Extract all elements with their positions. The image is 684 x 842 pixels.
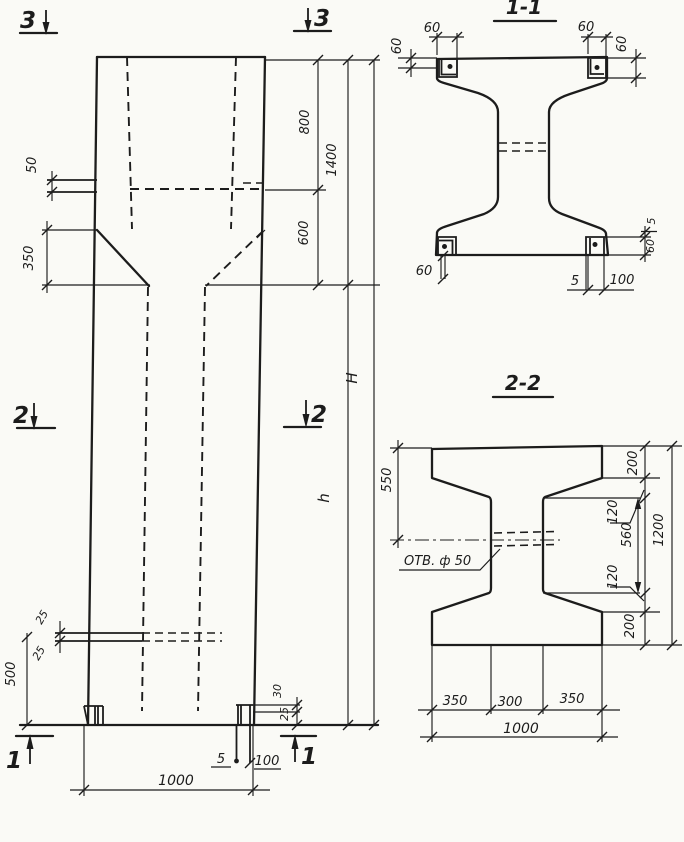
plate-bottom-left-stud-dot [442,244,447,249]
dim-550-group: 550 [380,440,432,548]
hole-label: ОТВ. ф 50 [404,554,471,569]
left-foot-lines [84,706,103,725]
section-2-2-outline [432,446,602,645]
plate-top-left-stud-dot [448,64,453,69]
dim-600-label: 600 [297,221,312,246]
dim-350-right-label: 350 [560,692,585,707]
right-foot-dims: 30 25 [253,684,302,730]
dim-50-label: 50 [25,157,40,174]
column-left-edge [88,57,97,725]
right-foot-lines [236,705,253,725]
dim-30-label: 30 [271,684,284,698]
dim-550-label: 550 [380,468,395,493]
marker-1-right-label: 1 [301,744,317,770]
hole-slot-dimensions: 25 25 500 [4,608,142,730]
marker-3-left-label: 3 [20,8,36,34]
hole-slot-lines [55,633,142,641]
dim-br-5-label: 5 [571,274,579,289]
section-marker-2-right: 2 [284,400,327,428]
section-marker-3-left: 3 [20,8,57,35]
dim-1000-22-label: 1000 [503,721,539,737]
dim-800-label: 800 [298,110,313,135]
dim-1200-label: 1200 [652,513,667,546]
column-right-edge [254,57,265,725]
right-foot-dim-lines [253,697,300,725]
anchor-pin-lines [237,725,251,763]
dim-200-top-label: 200 [626,451,641,476]
dim-200-bottom-label: 200 [623,614,638,639]
section-2-2-view: 2-2 ОТВ. ф 50 550 560 200 120 120 [380,371,682,742]
section-1-1-dims: 60 60 60 60 60 5 100 5 60 [390,20,658,295]
section-2-2-bottom-dims: 350 300 350 1000 [418,645,620,742]
dim-tl-60h-label: 60 [390,38,405,55]
dim-25-foot-label: 25 [278,707,291,721]
dim-560-label: 560 [620,523,635,548]
dim-350-label: 350 [22,246,37,271]
section-1-1-view: 1-1 60 60 60 60 [390,0,658,295]
hole-hidden-lines-2-2 [494,532,557,547]
plate-top-right-stud-dot [595,65,600,70]
dim-350-left-label: 350 [443,694,468,709]
dim-h-label: h [315,493,333,503]
taper-hidden-diagonal [206,231,263,286]
dim-bl-stud-lines [441,255,445,279]
dim-25-top-label: 25 [33,608,51,627]
dim-tr-60w-label: 60 [578,20,595,35]
dim-br-60side-label: 60 [644,239,657,253]
dim-1400-label: 1400 [325,143,340,176]
plate-bottom-right-stud-dot [593,242,598,247]
column-hidden-lines [127,57,264,711]
dim-500-label: 500 [4,662,19,687]
dim-120-bottom-label: 120 [606,565,621,590]
section-marker-1-left: 1 [6,734,53,774]
hole-hidden-lines [142,633,222,641]
head-step-dimension: 50 [25,157,97,201]
section-2-2-title: 2-2 [505,371,541,395]
dim-H-label: H [343,372,361,383]
marker-2-left-label: 2 [13,403,29,429]
section-marker-3-right: 3 [294,6,331,33]
section-1-1-title: 1-1 [506,0,542,19]
dim-300-label: 300 [498,695,523,710]
section-1-1-outline [436,57,608,255]
technical-drawing-sheet: 3 3 2 2 1 [0,0,684,842]
dim-bl-60-label: 60 [416,264,433,279]
dim-350-group: 350 [22,221,97,293]
column-feet: 5 100 [84,705,281,769]
dim-tr-60h-label: 60 [615,36,630,53]
marker-3-right-label: 3 [314,6,330,32]
taper-left-edge [97,230,149,286]
dim-1000-label: 1000 [158,773,194,789]
section-2-2-right-dims: 560 200 120 120 200 1200 [543,441,682,650]
elevation-bottom-dim: 1000 [70,725,270,796]
section-marker-1-right: 1 [281,734,317,770]
web-hidden-verticals [142,287,205,711]
dim-5-label: 5 [217,752,225,767]
marker-2-right-label: 2 [311,402,327,428]
elevation-view: 3 3 2 2 1 [4,6,380,796]
marker-1-left-label: 1 [6,748,22,774]
dim-br-5side-label: 5 [645,218,658,225]
column-drawing-svg: 3 3 2 2 1 [0,0,684,842]
dim-120-top-label: 120 [606,500,621,525]
dim-br-100-label: 100 [610,273,635,288]
section-marker-2-left: 2 [13,403,55,430]
dim-550-lines [390,440,432,548]
hole-callout: ОТВ. ф 50 [399,549,500,570]
dim-560-arrow-bottom [635,582,641,594]
anchor-pin-dot [234,759,239,764]
dim-100-label: 100 [255,754,280,769]
dim-chain-ticks [313,55,379,730]
dim-25-bottom-label: 25 [30,644,48,663]
section-1-1-hole-hidden [499,143,548,151]
head-hidden-verticals [127,57,236,229]
dim-tl-60w-label: 60 [424,21,441,36]
